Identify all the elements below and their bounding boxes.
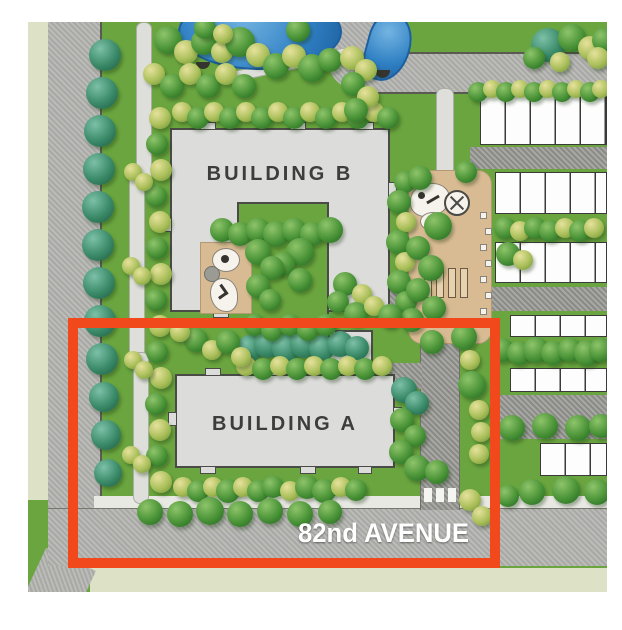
tree <box>135 173 153 191</box>
tree <box>584 218 604 238</box>
townhouse-row <box>540 443 607 476</box>
tree <box>587 47 607 69</box>
tree <box>387 190 411 214</box>
stepping-stone-icon <box>480 244 487 251</box>
tree <box>418 255 444 281</box>
tree <box>149 211 171 233</box>
tree <box>424 212 452 240</box>
play-equipment-icon <box>418 192 425 199</box>
tree <box>259 289 281 311</box>
planter-icon <box>448 268 456 298</box>
tree <box>83 153 115 185</box>
tree <box>396 212 416 232</box>
stepping-stone-icon <box>480 276 487 283</box>
tree <box>232 74 256 98</box>
tree <box>497 485 519 507</box>
tree <box>552 476 580 504</box>
tree <box>317 217 343 243</box>
tree <box>82 229 114 261</box>
tree <box>513 250 533 270</box>
tree <box>149 107 171 129</box>
tree <box>146 133 168 155</box>
tree <box>86 77 118 109</box>
tree <box>499 415 525 441</box>
verge-strip-left <box>28 22 48 500</box>
tree <box>377 107 399 129</box>
stepping-stone-icon <box>480 212 487 219</box>
tree <box>83 267 115 299</box>
tree <box>82 191 114 223</box>
tree <box>408 166 432 190</box>
townhouse-lane-1 <box>470 147 607 169</box>
tree <box>89 39 121 71</box>
tree <box>146 237 168 259</box>
townhouse-lane-2 <box>480 287 607 311</box>
stepping-stone-icon <box>485 292 492 299</box>
townhouse-row <box>495 172 607 214</box>
picnic-table-icon <box>444 190 470 216</box>
tree <box>519 479 545 505</box>
stepping-stone-icon <box>485 228 492 235</box>
verge-strip-bottom <box>90 568 607 592</box>
tree <box>589 414 607 438</box>
stepping-stone-icon <box>480 308 487 315</box>
tree <box>288 268 312 292</box>
townhouse-row <box>510 368 607 392</box>
townhouse-row <box>480 95 607 145</box>
tree <box>133 267 151 285</box>
stepping-stone-icon <box>485 260 492 267</box>
tree <box>84 115 116 147</box>
tree <box>213 24 233 44</box>
footpath-left-1 <box>136 22 152 184</box>
tree <box>584 479 607 505</box>
planter-icon <box>460 268 468 298</box>
highlight-rectangle <box>68 318 500 568</box>
building-b-label: BUILDING B <box>170 162 390 186</box>
townhouse-row <box>510 315 607 337</box>
site-plan-map: BUILDING B BUILDING A 82nd AVENUE <box>28 22 607 592</box>
play-equipment-icon <box>221 255 229 263</box>
tree <box>550 52 570 72</box>
tree <box>565 415 591 441</box>
tree <box>422 296 446 320</box>
tree <box>532 413 558 439</box>
tree <box>318 48 342 72</box>
site-plan-canvas: BUILDING B BUILDING A 82nd AVENUE <box>0 0 622 630</box>
tree <box>523 47 545 69</box>
tree <box>592 80 607 98</box>
tree <box>344 98 368 122</box>
tree <box>589 338 607 362</box>
tree <box>150 263 172 285</box>
tree <box>145 289 167 311</box>
footpath-plaza <box>436 88 454 178</box>
tree <box>455 161 477 183</box>
tree <box>150 159 172 181</box>
